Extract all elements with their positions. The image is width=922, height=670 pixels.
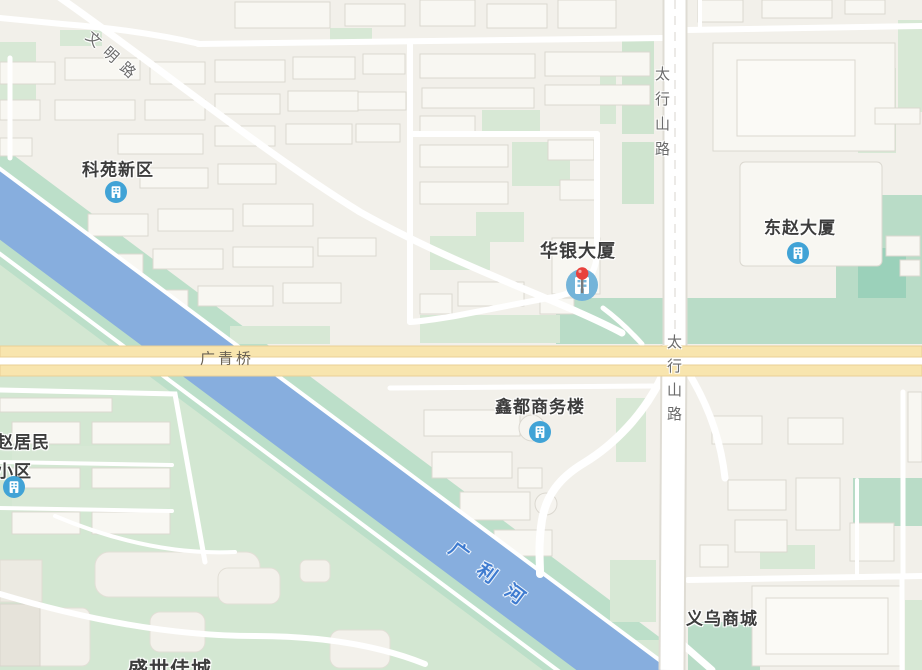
building-icon-glyph (529, 421, 551, 443)
building-icon[interactable] (3, 476, 25, 498)
poi-label-keyuan-xinqu[interactable]: 科苑新区 (82, 156, 154, 181)
poi-label-shengshi[interactable]: 盛世佳城 (128, 653, 212, 670)
building-icon[interactable] (529, 421, 551, 443)
poi-label-zhaojumin-line1[interactable]: 赵居民 (0, 428, 50, 453)
location-pin-icon[interactable] (565, 267, 599, 301)
poi-label-yiwu-shangcheng[interactable]: 义乌商城 (686, 605, 758, 630)
poi-label-huayin-dasha[interactable]: 华银大厦 (540, 237, 616, 263)
building-icon-glyph (105, 181, 127, 203)
building-icon-glyph (3, 476, 25, 498)
poi-label-dongzhao-dasha[interactable]: 东赵大厦 (764, 214, 836, 239)
poi-label-xindu-shangwulou[interactable]: 鑫都商务楼 (495, 393, 585, 418)
building-icon[interactable] (787, 242, 809, 264)
map-canvas[interactable]: 文明路 太行山路 太行山路 广青桥 广利河 科苑新区 华银大厦 东赵大厦 鑫都商… (0, 0, 922, 670)
road-label-guangqing-bridge: 广青桥 (200, 348, 254, 369)
road-label-taihangshan-south: 太行山路 (664, 334, 685, 430)
building-icon[interactable] (105, 181, 127, 203)
guangqing-bridge-road (0, 346, 922, 376)
building-icon-glyph (787, 242, 809, 264)
road-label-taihangshan-north: 太行山路 (652, 66, 673, 166)
location-pin-glyph (565, 267, 599, 301)
